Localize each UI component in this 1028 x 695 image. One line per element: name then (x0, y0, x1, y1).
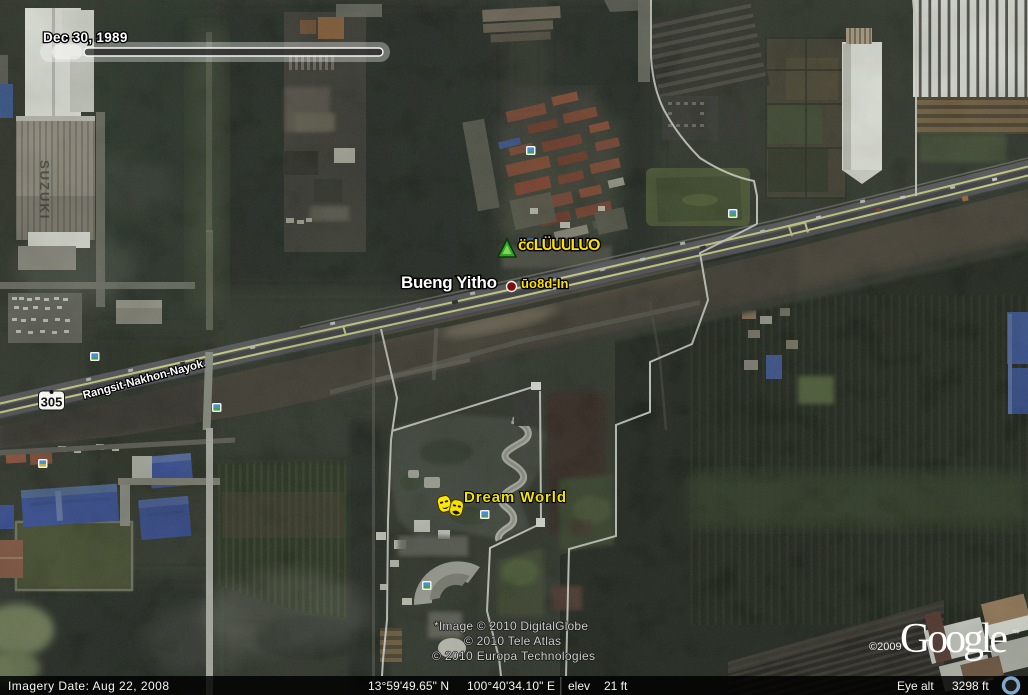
svg-text:Imagery Date: Aug 22, 2008: Imagery Date: Aug 22, 2008 (8, 679, 169, 693)
svg-text:13°59'49.65" N: 13°59'49.65" N (368, 679, 449, 693)
svg-text:Google: Google (900, 616, 1008, 662)
svg-text:Bueng Yitho: Bueng Yitho (401, 273, 497, 292)
svg-text:100°40'34.10" E: 100°40'34.10" E (467, 679, 555, 693)
svg-text:elev: elev (568, 679, 590, 693)
svg-text:™: ™ (1011, 628, 1020, 638)
svg-text:Dec 30, 1989: Dec 30, 1989 (43, 30, 128, 45)
svg-text:*Image © 2010 DigitalGlobe: *Image © 2010 DigitalGlobe (434, 619, 588, 633)
svg-text:Eye alt: Eye alt (897, 679, 934, 693)
svg-text:©2009: ©2009 (869, 641, 902, 653)
svg-text:© 2010 Europa Technologies: © 2010 Europa Technologies (432, 649, 595, 663)
svg-text:ūo8d-In: ūo8d-In (521, 276, 569, 291)
svg-text:Dream World: Dream World (464, 489, 566, 506)
svg-text:© 2010 Tele Atlas: © 2010 Tele Atlas (464, 634, 561, 648)
svg-text:3298 ft: 3298 ft (952, 679, 989, 693)
svg-text:öoLÜUULUO: öoLÜUULUO (518, 235, 600, 254)
svg-text:21 ft: 21 ft (604, 679, 628, 693)
svg-text:305: 305 (41, 395, 63, 410)
